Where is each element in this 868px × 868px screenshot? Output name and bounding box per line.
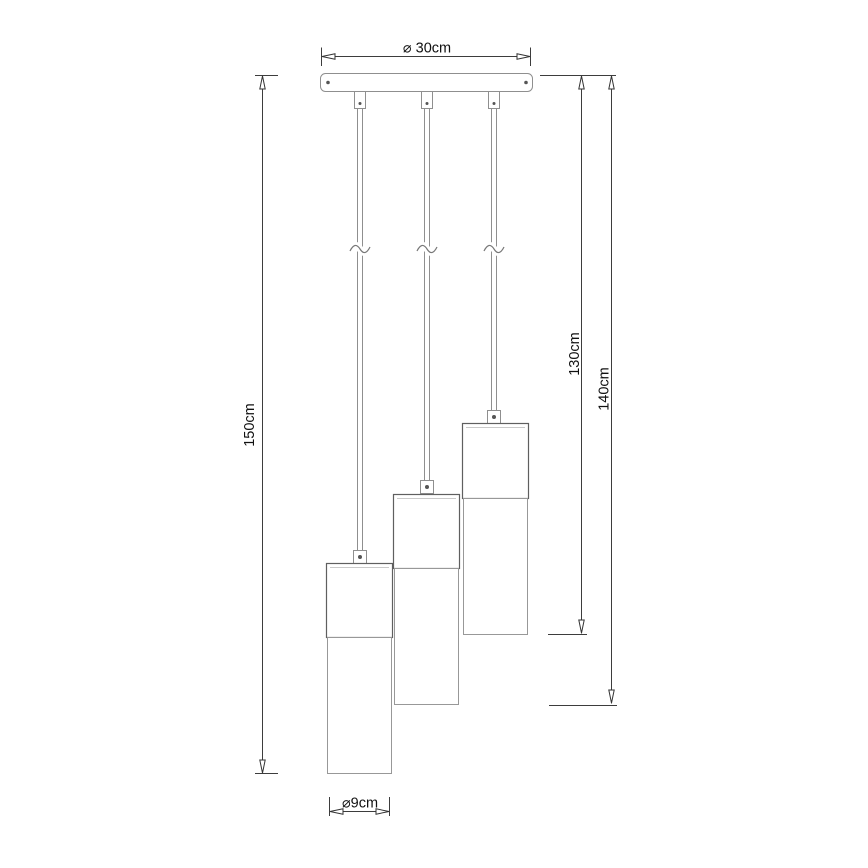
canopy-diameter-label: ⌀ 30cm bbox=[403, 41, 451, 57]
arrow-up-icon bbox=[609, 76, 614, 89]
ceiling-canopy bbox=[321, 74, 533, 92]
canopy-plate bbox=[321, 74, 533, 92]
technical-drawing-canvas: ⌀ 30cm 150cm 130cm 140cm bbox=[0, 0, 868, 868]
cable-break-left bbox=[350, 245, 370, 252]
drop-short-label: 130cm bbox=[567, 332, 583, 376]
mount-screw-middle bbox=[426, 102, 429, 105]
arrow-down-icon bbox=[609, 690, 614, 703]
shade-diameter-label: ⌀9cm bbox=[342, 796, 378, 812]
shade-right-lower bbox=[464, 499, 528, 635]
shade-left-upper bbox=[327, 564, 393, 638]
dimension-total-drop: 150cm bbox=[242, 76, 278, 774]
connector-screw-right bbox=[492, 415, 496, 419]
arrow-left-icon bbox=[322, 54, 335, 59]
dimension-drop-short: 130cm bbox=[548, 76, 587, 635]
canopy-screw-left bbox=[326, 81, 330, 85]
cable-right bbox=[492, 109, 497, 411]
arrow-down-icon bbox=[579, 620, 584, 633]
cable-mount-right bbox=[489, 92, 500, 109]
shade-middle-lower bbox=[395, 569, 459, 705]
total-drop-label: 150cm bbox=[242, 403, 258, 447]
cable-mounts bbox=[355, 92, 500, 109]
mount-screw-right bbox=[493, 102, 496, 105]
arrow-right-icon bbox=[517, 54, 530, 59]
shade-left-lower bbox=[328, 638, 392, 774]
mount-screw-left bbox=[359, 102, 362, 105]
dimension-drop-middle: 140cm bbox=[549, 76, 617, 706]
dimension-shade-diameter: ⌀9cm bbox=[330, 796, 390, 817]
shade-middle bbox=[394, 495, 460, 705]
shade-right bbox=[463, 424, 529, 635]
cable-mount-middle bbox=[422, 92, 433, 109]
cable-break-right bbox=[484, 245, 504, 252]
cable-left bbox=[358, 109, 363, 551]
pendant-lamp-dimension-diagram: ⌀ 30cm 150cm 130cm 140cm bbox=[0, 0, 868, 868]
arrow-up-icon bbox=[579, 76, 584, 89]
arrow-up-icon bbox=[260, 76, 265, 89]
drop-middle-label: 140cm bbox=[597, 367, 613, 411]
cable-middle bbox=[425, 109, 430, 481]
arrow-down-icon bbox=[260, 760, 265, 773]
canopy-screw-right bbox=[524, 81, 528, 85]
shade-left bbox=[327, 564, 393, 774]
shade-right-upper bbox=[463, 424, 529, 499]
shade-middle-upper bbox=[394, 495, 460, 569]
connector-screw-middle bbox=[425, 485, 429, 489]
cable-mount-left bbox=[355, 92, 366, 109]
cable-break-middle bbox=[417, 245, 437, 252]
dimension-canopy-diameter: ⌀ 30cm bbox=[322, 41, 531, 67]
connector-screw-left bbox=[358, 555, 362, 559]
